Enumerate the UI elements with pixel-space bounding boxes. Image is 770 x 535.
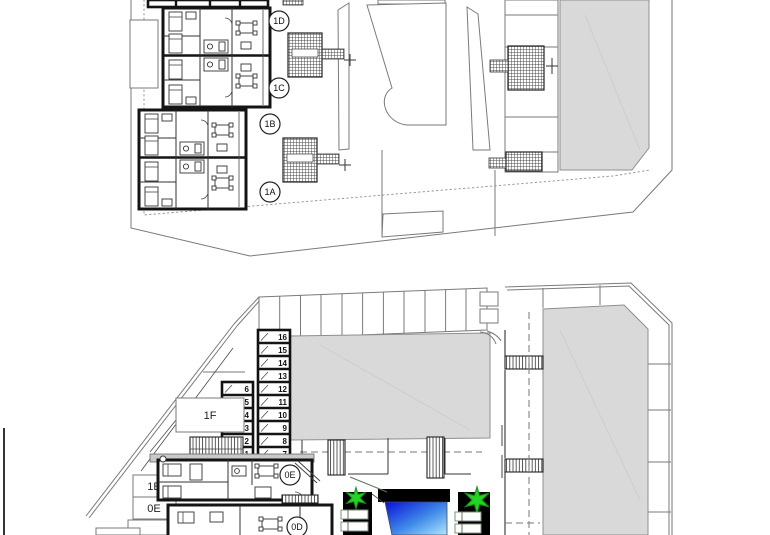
planter-box	[130, 20, 158, 88]
storage-number: 6	[245, 385, 250, 394]
stair-central-left	[328, 440, 345, 475]
unit-label-0e: 0E	[284, 470, 295, 480]
storage-number: 5	[245, 398, 250, 407]
stair-right-building-lower	[505, 459, 543, 472]
unit-label-0d: 0D	[291, 522, 303, 532]
empty-box-left-2	[96, 528, 140, 535]
pool-deck	[378, 489, 450, 502]
storage-number: 11	[279, 398, 288, 407]
storage-number: 9	[283, 424, 288, 433]
stair-core-lower-right	[489, 152, 542, 171]
walkway-hatch-between-units	[282, 495, 318, 503]
pool-area	[341, 477, 490, 535]
unit-circle-1a: 1A	[260, 182, 280, 202]
unit-circle-1c: 1C	[269, 78, 289, 98]
apartment-building-0d	[168, 505, 332, 535]
stair-right-building-upper	[505, 356, 543, 369]
gray-building-right	[480, 285, 671, 535]
architectural-site-plan: 1D 1C 1B 1A	[0, 0, 770, 535]
unit-circle-1b: 1B	[260, 114, 280, 134]
unit-circle-0e: 0E	[280, 465, 300, 485]
storage-number: 14	[278, 359, 287, 368]
parking-bay-south	[382, 211, 443, 237]
storage-number: 8	[283, 437, 288, 446]
area-label-1f: 1F	[204, 410, 217, 422]
upper-site-plan: 1D 1C 1B 1A	[130, 0, 672, 256]
unit-label-1c: 1C	[273, 83, 285, 93]
storage-number: 4	[245, 411, 250, 420]
gray-building-central	[290, 333, 490, 440]
cut-building-top-edge	[148, 0, 303, 7]
unit-circle-0d: 0D	[287, 517, 307, 535]
storage-number: 16	[278, 333, 287, 342]
lower-site-plan: 16 15 14 13 12 11 10 9 8 7 6 5 4 3 2	[4, 283, 672, 535]
apartment-building-b	[139, 110, 246, 209]
storage-units-right: 16 15 14 13 12 11 10 9 8 7	[258, 330, 290, 460]
corridor-below-central-building	[300, 437, 482, 478]
gray-building-upper	[560, 0, 649, 170]
swimming-pool	[385, 502, 447, 535]
unit-label-1d: 1D	[273, 16, 285, 26]
storage-number: 13	[278, 372, 287, 381]
label-box-1f: 1F	[176, 398, 244, 432]
site-plan-drawing: 1D 1C 1B 1A	[0, 0, 770, 535]
unit-circle-1d: 1D	[269, 11, 289, 31]
stair-central-right	[427, 437, 444, 478]
road-shapes	[338, 0, 495, 237]
storage-number: 3	[245, 424, 250, 433]
storage-number: 10	[278, 411, 287, 420]
unit-label-1b: 1B	[264, 119, 275, 129]
area-label-0e: 0E	[147, 503, 160, 515]
apartment-building-a	[163, 8, 270, 107]
unit-label-1a: 1A	[264, 187, 275, 197]
storage-number: 12	[278, 385, 287, 394]
storage-number: 2	[245, 437, 250, 446]
storage-number: 15	[278, 346, 287, 355]
